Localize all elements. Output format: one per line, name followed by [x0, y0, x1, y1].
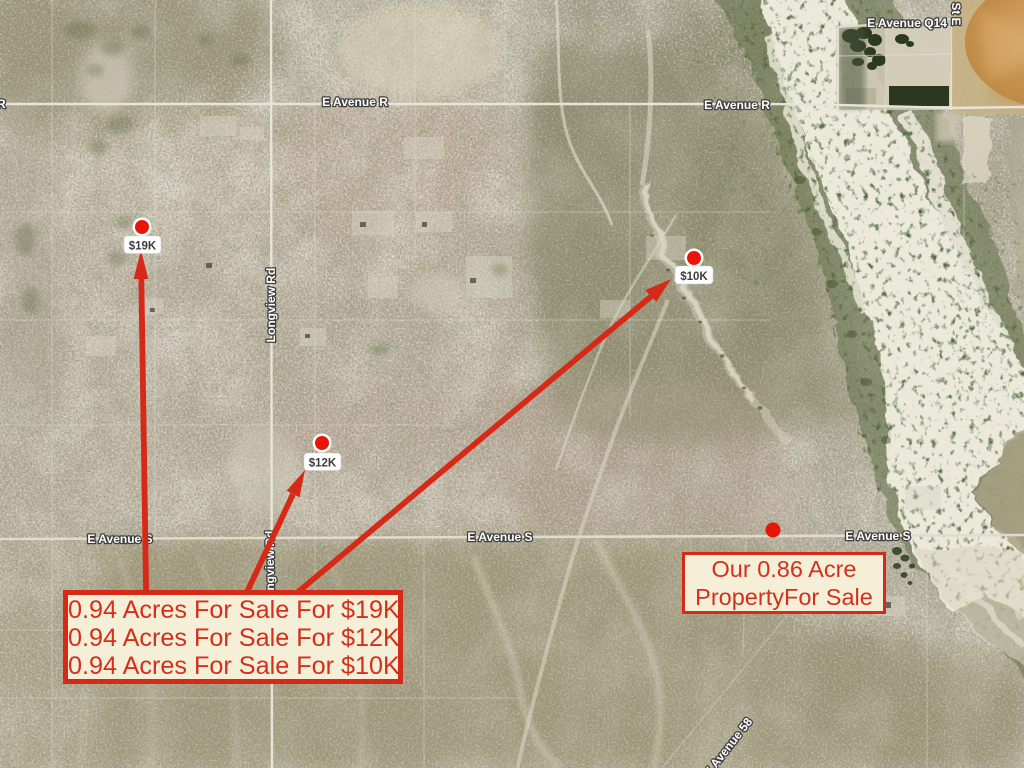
svg-text:E Avenue R: E Avenue R [322, 95, 388, 109]
svg-text:E Avenue S: E Avenue S [467, 530, 532, 544]
svg-text:E Avenue Q14: E Avenue Q14 [867, 16, 947, 30]
svg-text:R: R [0, 97, 6, 111]
svg-text:Longview Rd: Longview Rd [264, 268, 278, 343]
svg-text:St E: St E [949, 2, 963, 25]
svg-text:E Avenue R: E Avenue R [704, 98, 770, 112]
svg-text:$10K: $10K [680, 271, 708, 283]
svg-text:$19K: $19K [129, 241, 157, 253]
svg-text:$12K: $12K [309, 458, 337, 470]
svg-text:E Avenue S: E Avenue S [845, 529, 910, 543]
